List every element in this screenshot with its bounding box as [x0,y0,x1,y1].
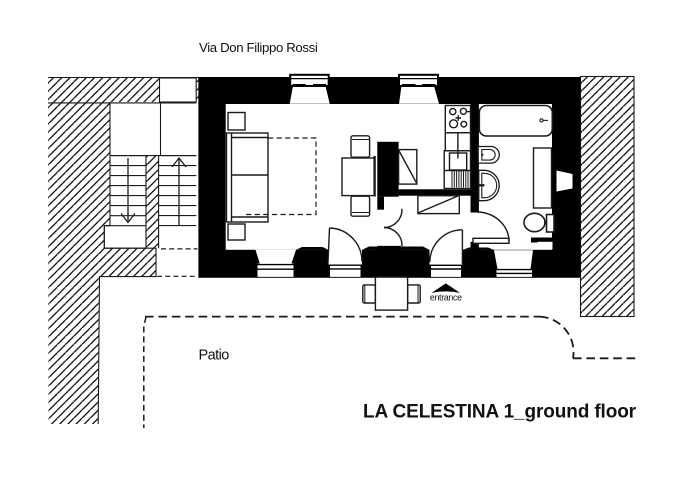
svg-text:Patio: Patio [199,348,230,364]
svg-text:Via Don Filippo Rossi: Via Don Filippo Rossi [199,40,318,55]
svg-text:entrance: entrance [430,292,462,302]
svg-text:LA CELESTINA 1_ground floor: LA CELESTINA 1_ground floor [363,402,637,423]
